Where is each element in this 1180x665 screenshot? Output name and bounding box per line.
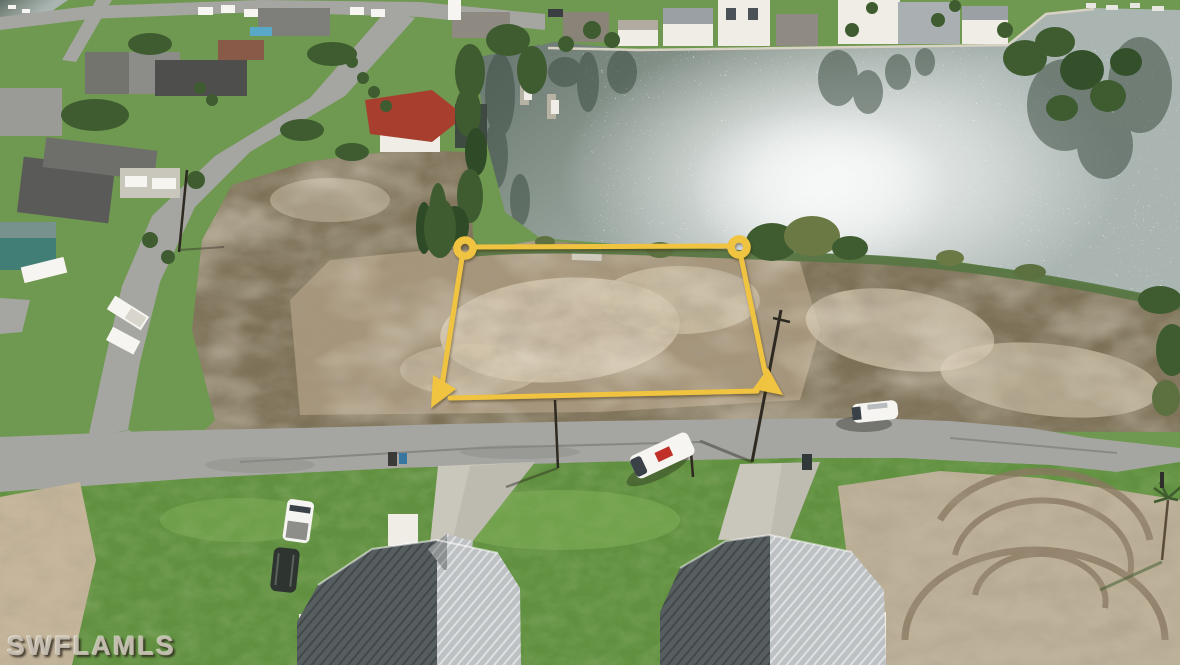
open-hatch xyxy=(851,407,861,421)
white-shed xyxy=(388,514,418,546)
parked-suv-bottom-left xyxy=(270,547,300,593)
mailbox-post xyxy=(1160,472,1164,488)
mls-watermark: SWFLAMLS xyxy=(7,631,176,662)
dirt-lot-bottom-right xyxy=(838,471,1180,665)
bottom-zone xyxy=(0,452,1180,665)
aerial-scene xyxy=(0,0,1180,665)
truck-bed xyxy=(285,521,308,541)
swimming-pool xyxy=(250,27,272,36)
aerial-photo-vacant-lot-listing: SWFLAMLS xyxy=(0,0,1180,665)
boundary-top-line xyxy=(476,246,727,247)
blue-bin xyxy=(399,453,407,464)
